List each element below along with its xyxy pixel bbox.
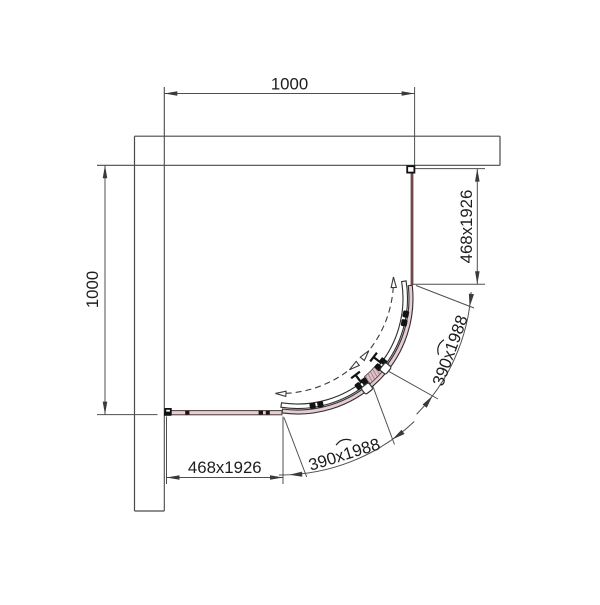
svg-text:1000: 1000 xyxy=(271,75,308,94)
svg-text:468x1926: 468x1926 xyxy=(457,190,476,264)
svg-text:1000: 1000 xyxy=(83,271,102,308)
svg-text:468x1926: 468x1926 xyxy=(188,458,262,477)
